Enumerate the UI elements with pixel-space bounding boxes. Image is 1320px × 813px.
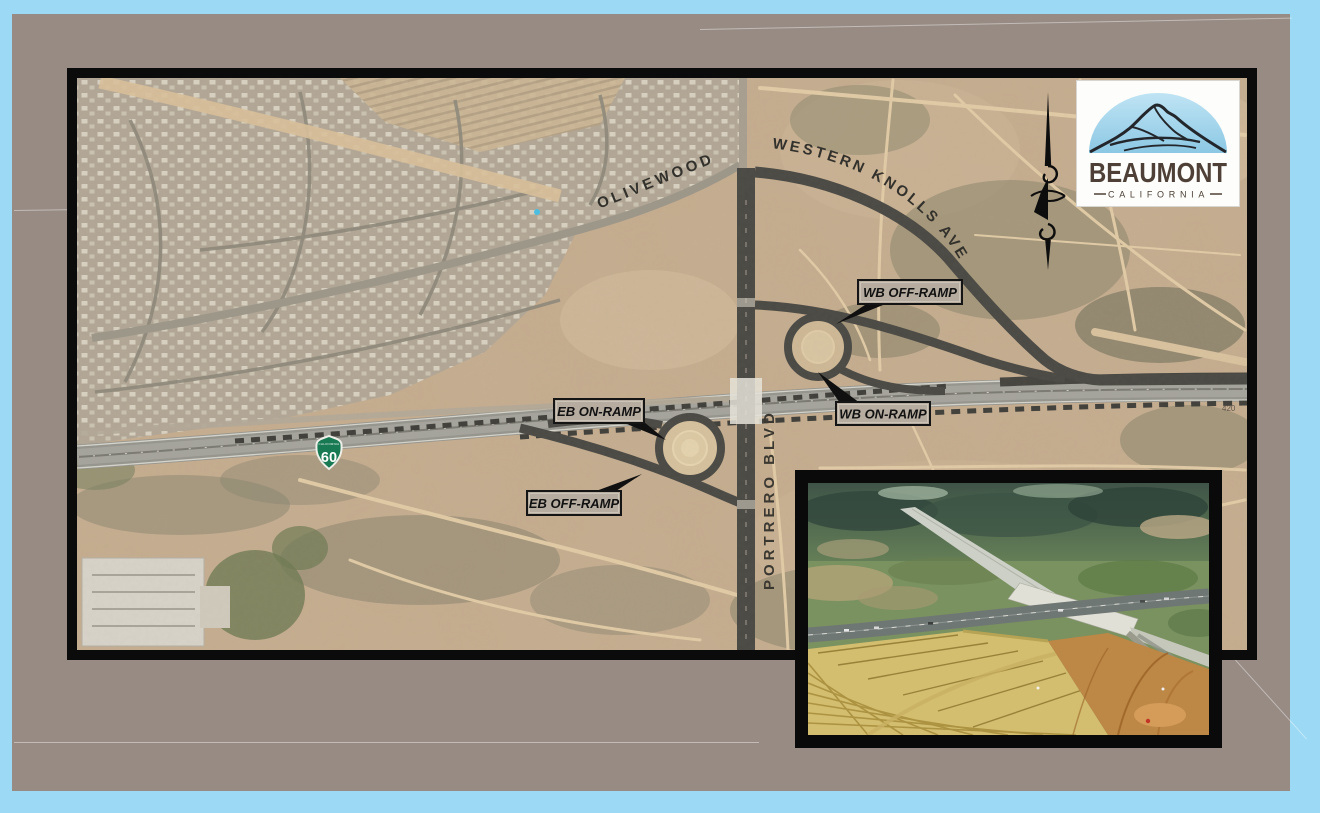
svg-text:EB OFF-RAMP: EB OFF-RAMP [529,496,620,511]
north-arrow-ornament-icon [1028,92,1068,272]
svg-text:WB ON-RAMP: WB ON-RAMP [839,407,927,422]
shield-route-number: 60 [321,450,337,466]
svg-text:WB OFF-RAMP: WB OFF-RAMP [863,285,957,300]
beaumont-logo: BEAUMONT CALIFORNIA [1076,80,1240,207]
logo-state-name: CALIFORNIA [1108,190,1208,200]
logo-mountain-icon [1089,93,1227,153]
shield-state-label: CALIFORNIA [318,442,339,446]
artifact-line [14,742,759,743]
svg-text:EB ON-RAMP: EB ON-RAMP [557,404,641,419]
logo-city-name: BEAUMONT [1089,157,1227,188]
street-portrero-label: PORTRERO BLVD [761,409,778,590]
inset-aerial-photo [795,470,1222,748]
